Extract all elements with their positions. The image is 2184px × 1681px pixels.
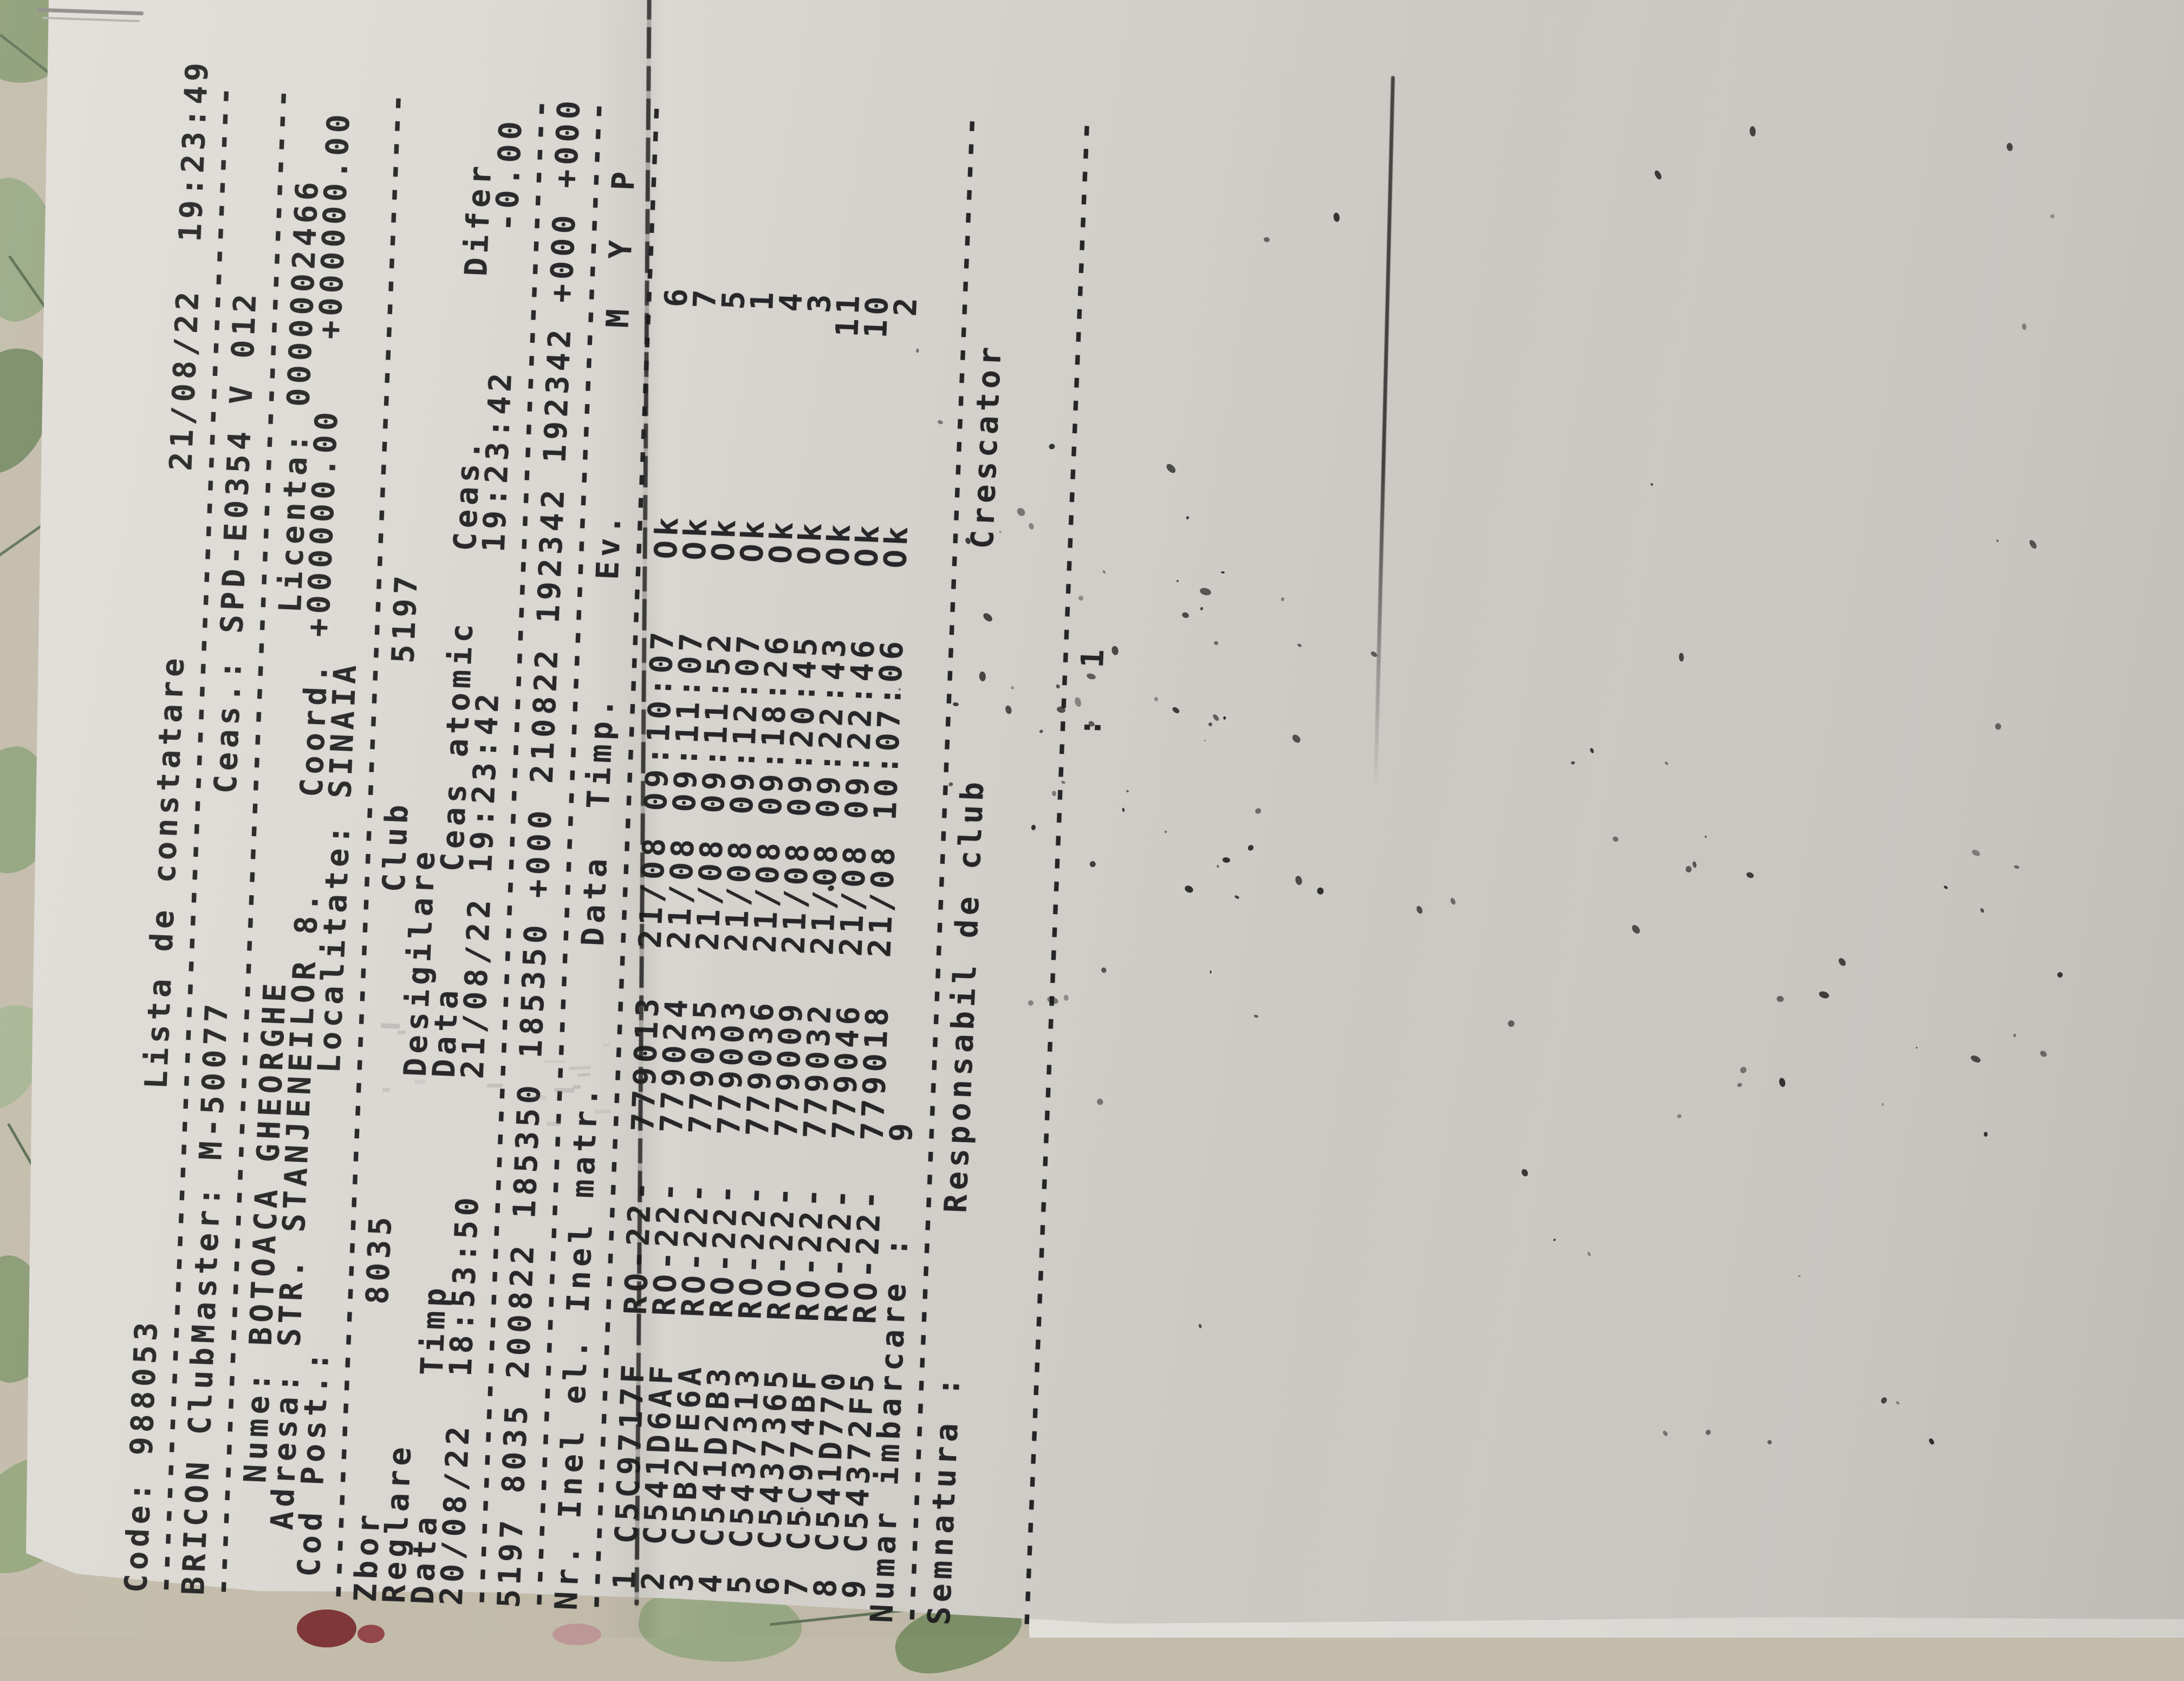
tablecloth-flower — [357, 1625, 385, 1643]
tablecloth-flower — [297, 1610, 356, 1647]
receipt-text: Code: 988053 Lista de constatare 21/08/2… — [122, 0, 1137, 1630]
photo-of-receipt: { "scene": { "colors": { "paper": "#d6d3… — [0, 0, 2184, 1638]
